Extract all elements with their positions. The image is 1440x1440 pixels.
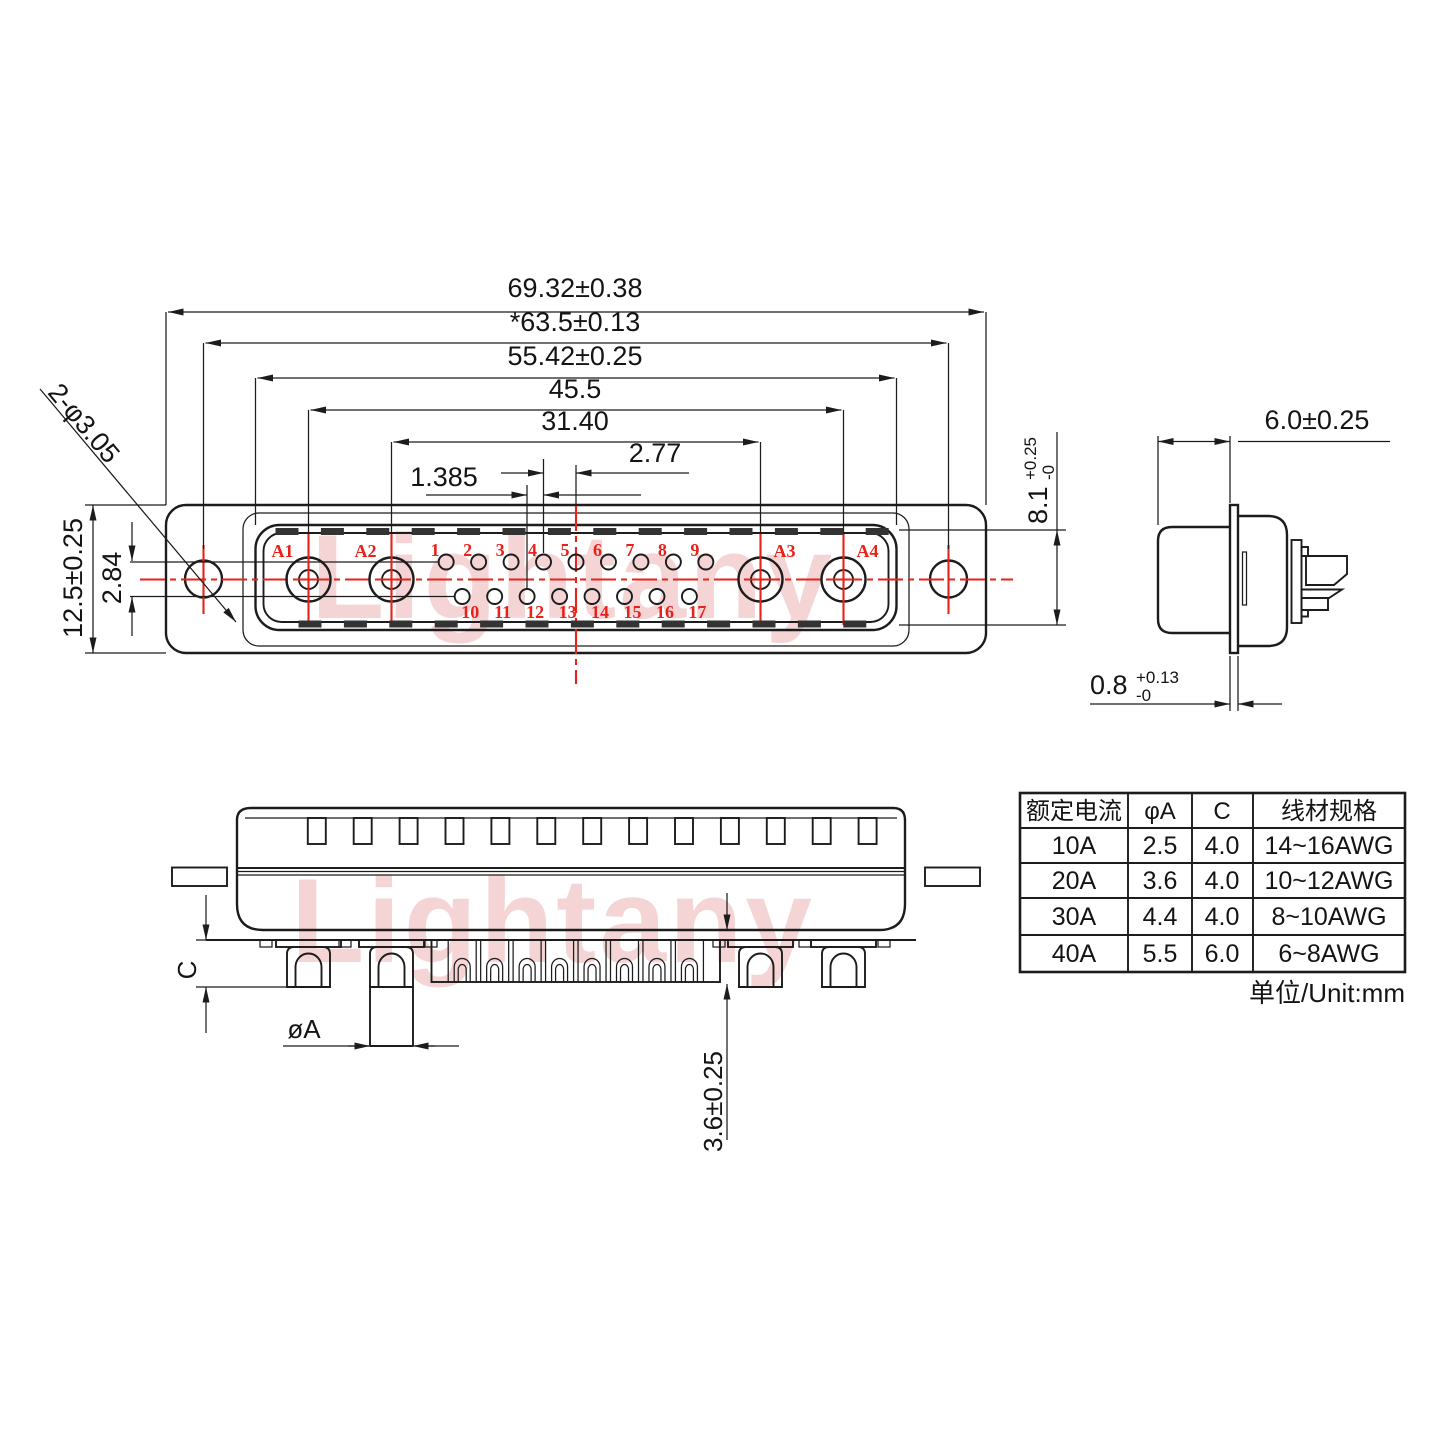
pin-label: 1 [431, 540, 440, 560]
shell-dash [820, 528, 843, 535]
cell: 4.0 [1205, 867, 1240, 895]
unit-note: 单位/Unit:mm [1249, 978, 1405, 1008]
table-header-c: C [1213, 798, 1230, 825]
dim-pin-pitch: 2.77 [629, 438, 682, 468]
pin-label: 13 [559, 602, 577, 622]
cell: 4.0 [1205, 903, 1240, 931]
c-extension-lines [196, 940, 288, 987]
pin-label: 7 [625, 540, 634, 560]
cell: 10~12AWG [1264, 867, 1393, 895]
shell-dash [480, 621, 503, 628]
table-header-wire: 线材规格 [1281, 798, 1377, 825]
cell: 8~10AWG [1271, 903, 1386, 931]
side-view: 6.0±0.25 0.8 +0.13 -0 [1090, 405, 1390, 711]
shell-dash [344, 621, 367, 628]
power-pin-label: A1 [272, 541, 294, 561]
svg-text:8.1: 8.1 [1023, 486, 1053, 524]
pin-label: 3 [496, 540, 505, 560]
dim-flange-thickness: 0.8 +0.13 -0 [1090, 668, 1179, 705]
cell: 30A [1052, 903, 1097, 931]
shell-dash [684, 528, 707, 535]
pin-label: 15 [624, 602, 642, 622]
cell: 14~16AWG [1264, 832, 1393, 860]
table-row: 20A 3.6 4.0 10~12AWG [1052, 867, 1394, 895]
dim-pin-diameter: øA [287, 1014, 321, 1044]
pin-label: 5 [561, 540, 570, 560]
shell-slot [400, 818, 418, 844]
shell-dash [753, 621, 776, 628]
shell-slot [491, 818, 509, 844]
dim-inner-power-span: 31.40 [541, 406, 609, 436]
barrel-cap [811, 940, 876, 947]
pin-label: 2 [463, 540, 472, 560]
shell-dash [866, 528, 889, 535]
side-extension-lines [1158, 436, 1390, 711]
svg-text:-0: -0 [1136, 686, 1151, 705]
pin-label: 8 [658, 540, 667, 560]
cell: 4.4 [1143, 903, 1178, 931]
shell-slot [308, 818, 326, 844]
shell-slot [583, 818, 601, 844]
table-row: 30A 4.4 4.0 8~10AWG [1052, 903, 1387, 931]
pin-label: 16 [656, 602, 674, 622]
cell: 4.0 [1205, 832, 1240, 860]
cell: 5.5 [1143, 940, 1178, 968]
cell: 10A [1052, 832, 1097, 860]
cell: 2.5 [1143, 832, 1178, 860]
dim-row-offset: 1.385 [410, 462, 478, 492]
shell-slot [859, 818, 877, 844]
svg-text:0.8: 0.8 [1090, 670, 1128, 700]
drawing-canvas: Lightany Lightany [0, 0, 1440, 1440]
shell-slot [813, 818, 831, 844]
side-terminals [1302, 547, 1348, 617]
dim-shell-height: 8.1 +0.25 -0 [1021, 437, 1058, 524]
dim-overall-width: 69.32±0.38 [508, 273, 643, 303]
pin-label: 14 [591, 602, 609, 622]
shell-dash [571, 621, 594, 628]
shell-dash [707, 621, 730, 628]
shell-dash [276, 528, 299, 535]
table-header-current: 额定电流 [1026, 798, 1122, 825]
shell-dash [435, 621, 458, 628]
pin-label: 11 [494, 602, 511, 622]
power-pin-label: A3 [774, 541, 796, 561]
svg-text:+0.25: +0.25 [1021, 437, 1040, 480]
shell-dash [366, 528, 389, 535]
shell-dash [389, 621, 412, 628]
table-header-diameter: φA [1144, 798, 1176, 825]
side-flange [1230, 505, 1238, 653]
shell-dash [616, 621, 639, 628]
dim-shell-width: 55.42±0.25 [508, 341, 643, 371]
side-rear-post [1292, 540, 1302, 623]
shell-slot [629, 818, 647, 844]
shell-dash [526, 621, 549, 628]
shell-dash [321, 528, 344, 535]
shell-dash [775, 528, 798, 535]
cell: 40A [1052, 940, 1097, 968]
shell-dash [798, 621, 821, 628]
power-pin-label: A4 [857, 541, 879, 561]
shell-dash [548, 528, 571, 535]
table-row: 10A 2.5 4.0 14~16AWG [1052, 832, 1394, 860]
cell: 6.0 [1205, 940, 1240, 968]
cell: 3.6 [1143, 867, 1178, 895]
dim-power-pin-span: 45.5 [549, 374, 602, 404]
side-shell [1158, 527, 1230, 633]
shell-slot [721, 818, 739, 844]
shell-slot [354, 818, 372, 844]
shell-slot [537, 818, 555, 844]
crimp-barrel-bore [831, 954, 857, 988]
pin-label: 6 [593, 540, 602, 560]
cell: 20A [1052, 867, 1097, 895]
svg-text:+0.13: +0.13 [1136, 668, 1179, 687]
shell-dash [412, 528, 435, 535]
technical-drawing-page: Lightany Lightany [0, 0, 1440, 1440]
shell-dash [662, 621, 685, 628]
dim-mount-hole-span: *63.5±0.13 [510, 307, 640, 337]
flange-tab-left [172, 868, 227, 887]
shell-dash [639, 528, 662, 535]
shell-dash [843, 621, 866, 628]
dim-hole-callout: 2-φ3.05 [42, 378, 125, 469]
pin-label: 17 [688, 602, 706, 622]
shell-slot [767, 818, 785, 844]
shell-dash [299, 621, 322, 628]
pin-label: 12 [526, 602, 544, 622]
pin-label: 4 [528, 540, 537, 560]
shell-slot [446, 818, 464, 844]
side-body [1238, 516, 1287, 646]
front-view: 69.32±0.38 *63.5±0.13 55.42±0.25 45.5 31… [40, 273, 1066, 684]
dim-flange-height: 12.5±0.25 [58, 518, 88, 638]
dim-pin-length: C [172, 961, 202, 980]
power-pin-label: A2 [355, 541, 377, 561]
shell-slot [675, 818, 693, 844]
dim-row-gap: 2.84 [97, 552, 127, 605]
spec-table: 额定电流 φA C 线材规格 10A 2.5 4.0 14~16AWG 20A … [1020, 793, 1405, 1008]
shell-dash [593, 528, 616, 535]
dim-shell-depth: 6.0±0.25 [1265, 405, 1370, 435]
flange-tab-right [925, 868, 980, 887]
shell-dash [730, 528, 753, 535]
extended-power-pin [370, 987, 413, 1046]
svg-text:-0: -0 [1039, 465, 1058, 480]
dim-pin-tip-length: 3.6±0.25 [698, 1051, 728, 1152]
side-body-rib [1243, 552, 1247, 605]
shell-dash [457, 528, 480, 535]
table-row: 40A 5.5 6.0 6~8AWG [1052, 940, 1380, 968]
shell-dash [503, 528, 526, 535]
pin-label: 10 [461, 602, 479, 622]
cell: 6~8AWG [1278, 940, 1379, 968]
pin-label: 9 [690, 540, 699, 560]
